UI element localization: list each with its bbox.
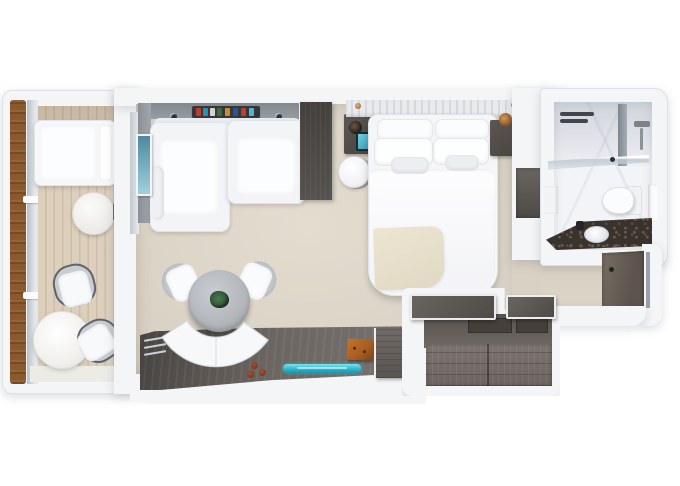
sofa-seat: [227, 120, 306, 204]
desk-tray: [347, 339, 374, 361]
double-bed: [368, 114, 498, 296]
sofa-cushion: [236, 137, 296, 195]
entry-door: [602, 251, 644, 310]
floorplan-canvas: [0, 0, 680, 486]
bedside-stool: [338, 156, 370, 188]
shower-hose-icon: [640, 128, 643, 150]
balcony-side-table: [72, 192, 115, 235]
decor-dot: [259, 369, 266, 376]
throw-blanket: [373, 226, 445, 290]
closet-shelf: [506, 295, 556, 319]
drawer-seam: [487, 344, 489, 386]
curved-bench: [150, 300, 282, 376]
toilet: [602, 186, 642, 213]
luggage-bench: [410, 294, 496, 320]
accent-pillow: [391, 157, 429, 174]
sink: [584, 226, 609, 243]
sofa-cushion: [159, 139, 219, 215]
wall-artwork: [136, 134, 152, 196]
balcony-railing: [10, 100, 26, 384]
lounger-cushion: [39, 125, 97, 181]
sun-lounger: [34, 120, 116, 186]
faucet-icon: [576, 221, 584, 230]
pillow: [435, 119, 489, 140]
decor-dot: [251, 362, 258, 369]
sofa-bed: [150, 118, 304, 230]
glass-hinge-icon: [610, 157, 615, 162]
toilet-bowl: [602, 187, 634, 214]
closet-tray: [468, 318, 512, 333]
bathroom-shelf: [544, 186, 558, 214]
tv-screen: [283, 364, 361, 373]
sofa-armrest: [150, 166, 164, 220]
towel-bar: [560, 112, 594, 116]
door-threshold: [646, 252, 650, 308]
accent-pillow: [445, 155, 479, 171]
door-handle-icon: [609, 267, 614, 272]
dresser-drawers: [426, 344, 552, 386]
lounger-pillow: [99, 125, 112, 181]
decor-dot: [247, 371, 254, 378]
book-shelf: [192, 106, 260, 118]
reading-light-icon: [355, 103, 361, 109]
shower-head-icon: [634, 121, 650, 127]
wardrobe-cabinet: [300, 102, 332, 200]
lamp-icon: [499, 113, 512, 126]
closet-tray: [516, 318, 548, 333]
towel-bar: [560, 119, 588, 123]
hanging-towel: [648, 184, 658, 222]
